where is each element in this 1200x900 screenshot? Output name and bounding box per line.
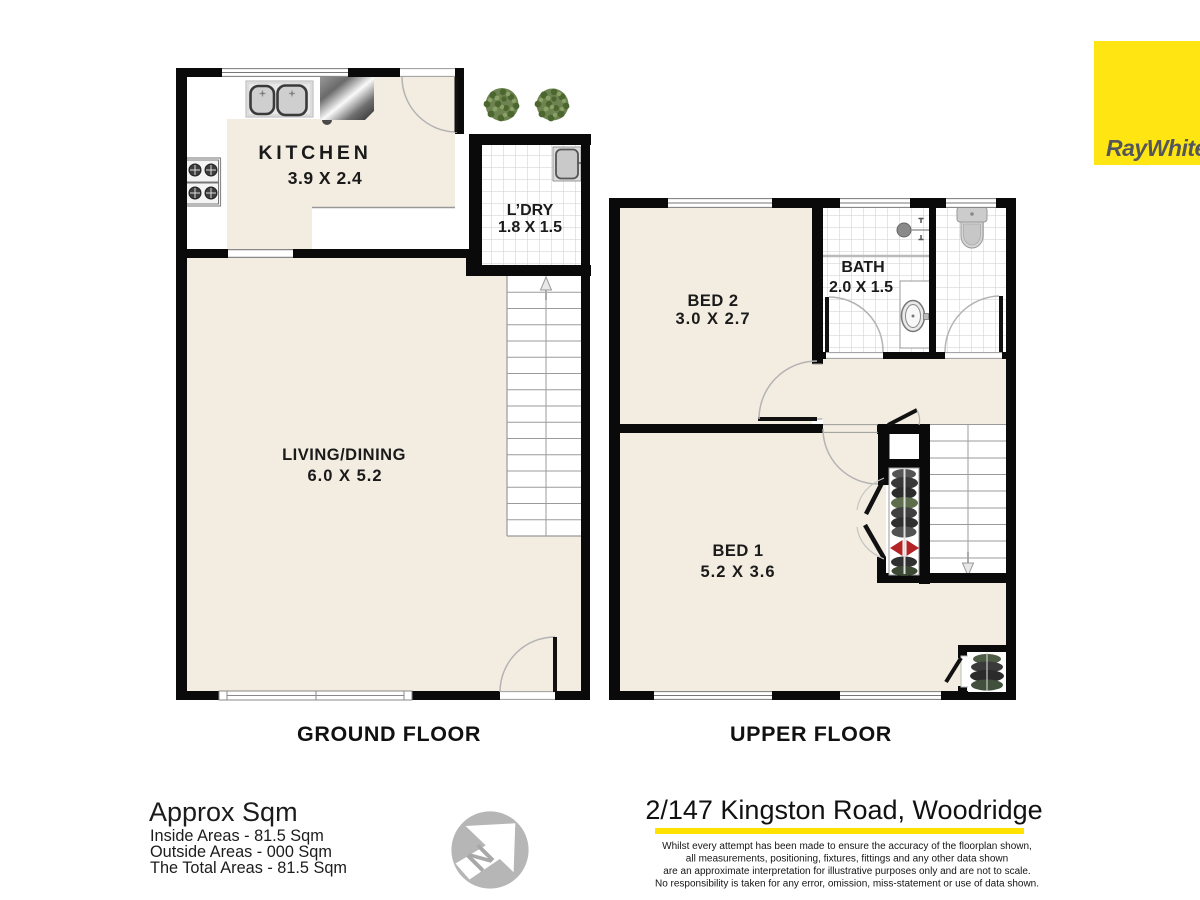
svg-text:are an approximate interpretat: are an approximate interpretation for il… [663,866,1030,877]
svg-text:3.0 X 2.7: 3.0 X 2.7 [675,310,750,328]
svg-text:The Total Areas - 81.5 Sqm: The Total Areas - 81.5 Sqm [150,859,347,877]
svg-text:No responsibility is taken for: No responsibility is taken for any error… [655,879,1039,890]
svg-text:1.8 X 1.5: 1.8 X 1.5 [498,219,562,236]
svg-text:Approx Sqm: Approx Sqm [149,797,298,827]
svg-text:2/147 Kingston Road, Woodridge: 2/147 Kingston Road, Woodridge [645,795,1042,825]
svg-text:L’DRY: L’DRY [507,202,554,219]
svg-text:BED 1: BED 1 [712,542,763,560]
svg-text:KITCHEN: KITCHEN [258,142,371,164]
svg-text:LIVING/DINING: LIVING/DINING [282,446,406,464]
svg-text:UPPER FLOOR: UPPER FLOOR [730,722,892,746]
svg-text:GROUND FLOOR: GROUND FLOOR [297,722,481,746]
svg-text:6.0 X 5.2: 6.0 X 5.2 [307,467,382,485]
svg-text:RayWhite.: RayWhite. [1106,135,1200,161]
svg-text:BED 2: BED 2 [687,292,738,310]
svg-text:Whilst every attempt has been: Whilst every attempt has been made to en… [662,841,1032,852]
svg-text:BATH: BATH [841,259,884,276]
svg-text:all measurements, positioning,: all measurements, positioning, fixtures,… [686,854,1008,865]
svg-text:5.2 X 3.6: 5.2 X 3.6 [700,563,775,581]
svg-text:3.9 X 2.4: 3.9 X 2.4 [288,168,363,188]
svg-text:2.0 X 1.5: 2.0 X 1.5 [829,279,893,296]
